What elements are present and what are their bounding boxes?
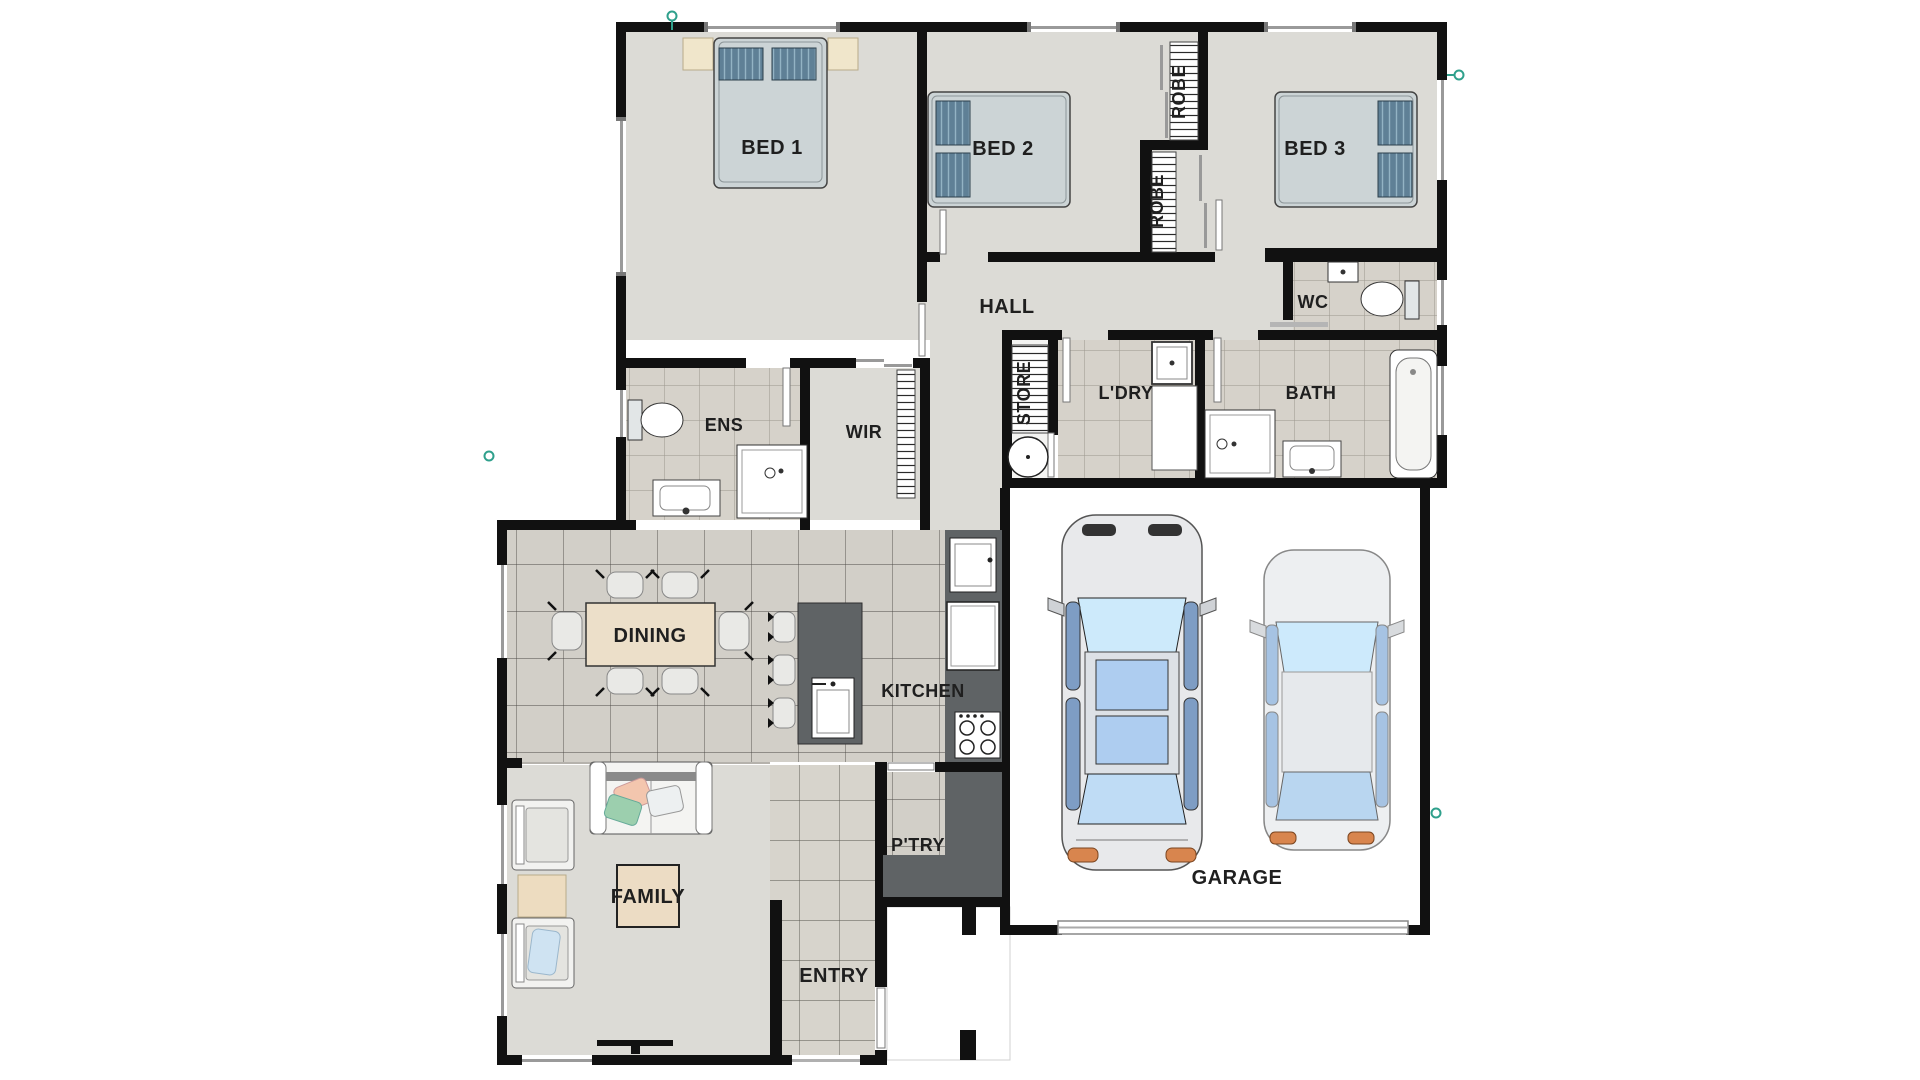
armchair-1 [512,800,574,870]
car1-vent-right [1148,524,1182,536]
car2-taillight-left [1270,832,1296,844]
wall-bed1-bed2 [917,32,927,302]
window-bed1-top [704,22,840,32]
dining-chair [607,572,643,598]
room-label-bed2: BED 2 [972,138,1033,160]
fridge-space [947,602,999,670]
wall-entry-right-lower [875,907,887,987]
floor-plan-page: BED 1 BED 2 BED 3 ROBE ROBE HALL WC ENS … [0,0,1920,1080]
knob [973,714,977,718]
car1-rear-window [1078,774,1186,824]
hot-water-cylinder-center [1026,455,1030,459]
armchair-2 [512,918,574,988]
wall-garage-top [1010,478,1447,488]
car1-windshield [1078,598,1186,652]
armchair-pillow-blue [527,928,561,975]
bed2-pillow-bottom [936,153,970,197]
ens-shower-head [765,468,775,478]
entry-door-bottom [792,1055,860,1065]
entry-floor [770,765,875,1055]
knob [959,714,963,718]
sofa [590,762,712,834]
room-label-garage: GARAGE [1192,867,1283,889]
downpipe-marker [1455,71,1464,80]
dining-chair [662,668,698,694]
bed2-pillow-top [936,101,970,145]
window-ens-left [616,390,626,437]
robe1-slider-a [1160,45,1163,90]
wall-robe2-bottom [1140,252,1215,262]
bar-stool [773,612,795,642]
car1-side-glass [1184,698,1198,810]
room-label-hall: HALL [979,296,1034,318]
car1-side-glass [1066,698,1080,810]
car1-sunroof-rear [1096,716,1168,764]
island-faucet [831,682,836,687]
bath-shower-knob [1232,442,1237,447]
kitchen-dining-floor [507,530,1002,762]
wir-shelving [897,370,915,498]
wc-cavity-slider [1270,322,1328,327]
window-bed3-right [1437,80,1447,180]
bar-stools [773,612,795,728]
store-fixtures [1008,437,1048,477]
armchair-back [516,924,524,982]
wall-family-stub [507,758,522,768]
wc-toilet-bowl [1361,282,1403,316]
family-side-table [518,875,566,917]
wall-robe1-right [1198,32,1208,150]
kitchen-sink [950,538,996,592]
porch-slab [887,907,1010,1060]
sofa-back-cushion [606,772,696,781]
bed3-pillow-bottom [1378,153,1412,197]
wall-hall-bottom-c [1258,330,1447,340]
car-1 [1048,515,1216,870]
wall-dining-top [497,520,636,530]
laundry-faucet [1170,361,1175,366]
car2-rear-window [1276,772,1378,820]
window-wc-right [1437,280,1447,325]
tv-stand [631,1046,640,1054]
car1-sunroof-front [1096,660,1168,710]
bath-door-leaf [1214,338,1221,402]
car2-taillight-right [1348,832,1374,844]
bath-shower [1205,410,1275,478]
car2-windshield [1276,622,1378,672]
window-family-bottom [522,1055,592,1065]
ldry-fixtures [1152,342,1197,470]
room-label-kitchen: KITCHEN [881,681,965,701]
window-bed3-top [1264,22,1356,32]
robe2-slider-a [1199,155,1202,201]
armchair-back [516,806,524,864]
room-label-ptry: P'TRY [891,835,945,855]
car1-side-glass [1066,602,1080,690]
bath-shower-head [1217,439,1227,449]
robe2-slider-b [1204,203,1207,248]
car2-side-glass [1266,712,1278,807]
bed1-side-table-left [683,38,713,70]
wall-garage-right [1420,478,1430,935]
bed1-door-leaf [919,304,925,356]
bathtub-drain [1410,369,1416,375]
dining-chair [552,612,582,650]
window-dining-left [497,565,507,658]
sofa-arm-right [696,762,712,834]
ens-door-leaf [783,368,790,426]
kitchen-faucet [988,558,993,563]
hall-corridor-floor [930,340,1002,530]
knob [980,714,984,718]
room-label-ens: ENS [705,415,744,435]
room-label-ldry: L'DRY [1098,383,1153,403]
window-family-left-1 [497,805,507,884]
ldry-door-leaf [1063,338,1070,402]
wc-toilet-tank [1405,281,1419,319]
wall-garage-bottom-left [1002,925,1062,935]
knob [966,714,970,718]
wall-bed3-bottom [1265,248,1437,262]
wall-bed1-ens-b [790,358,856,368]
pantry-shelf-right [945,772,1002,855]
window-bed2-top [1027,22,1120,32]
garage-door [1058,921,1408,934]
car1-vent-left [1082,524,1116,536]
window-family-left-2 [497,934,507,1016]
downpipe-marker [1432,809,1441,818]
wall-family-entry [770,900,782,1065]
pantry-door-leaf [888,763,934,770]
floor-plan: BED 1 BED 2 BED 3 ROBE ROBE HALL WC ENS … [0,0,1920,1080]
cooktop [955,712,1000,758]
ens-toilet-bowl [641,403,683,437]
dining-chair [719,612,749,650]
dining-chair [607,668,643,694]
wc-basin-faucet [1341,270,1346,275]
sofa-arm-left [590,762,606,834]
downpipe-marker [485,452,494,461]
room-label-robe-b: ROBE [1147,174,1167,228]
bed3-door-leaf [1216,200,1222,250]
wall-garage-bottom-right [1406,925,1430,935]
wall-store-right [1048,340,1058,435]
wall-bed2-bottom-b [988,252,1160,262]
bed1-pillow-right [772,48,816,80]
bath-basin [1290,446,1334,470]
car2-side-glass [1376,712,1388,807]
robe1-slider-b [1165,92,1168,138]
car1-taillight-left [1068,848,1098,862]
car1-taillight-right [1166,848,1196,862]
bed2-door-leaf [940,210,946,254]
room-label-bed1: BED 1 [741,137,802,159]
bed1-side-table-right [828,38,858,70]
wall-bed1-ens-a [616,358,746,368]
car2-side-glass [1266,625,1278,705]
car2-roof [1282,672,1372,772]
ens-faucet [683,508,689,514]
room-label-bed3: BED 3 [1284,138,1345,160]
car-2 [1250,550,1404,850]
wall-wc-left [1283,262,1293,320]
car2-side-glass [1376,625,1388,705]
wall-pantry-bottom [875,897,1010,907]
pantry-shelf-bottom [883,855,1002,897]
room-label-entry: ENTRY [799,965,869,987]
wall-pantry-top [935,762,1005,772]
room-label-wir: WIR [846,422,883,442]
wall-entry-right-corner [875,1050,887,1065]
room-label-wc: WC [1298,292,1329,312]
room-label-store: STORE [1014,361,1034,425]
wir-slider-b [884,364,912,367]
car1-side-glass [1184,602,1198,690]
porch-post-lower [960,1030,976,1060]
front-door-leaf [877,988,885,1048]
wall-robe1-bottom [1140,140,1208,150]
window-bed1-left [616,117,626,276]
ens-toilet-tank [628,400,642,440]
bar-stool [773,655,795,685]
porch-post-upper [962,907,976,935]
store-door-leaf [1048,433,1054,477]
window-bath-right [1437,366,1447,435]
dining-chair [662,572,698,598]
wall-hall-bottom-b [1108,330,1213,340]
island-sink [812,678,854,738]
ens-basin [660,486,710,510]
ens-shower-knob [779,469,784,474]
wall-wir-right [920,358,930,530]
ens-shower [737,445,807,518]
downpipe-marker [668,12,677,21]
bar-stool [773,698,795,728]
room-label-bath: BATH [1286,383,1337,403]
room-label-family: FAMILY [611,886,686,908]
wall-bed2-bottom-a [927,252,940,262]
wir-slider-a [856,359,884,362]
room-label-dining: DINING [614,625,687,647]
bath-faucet [1309,468,1315,474]
laundry-bench [1152,386,1197,470]
bed3-pillow-top [1378,101,1412,145]
bed1-pillow-left [719,48,763,80]
armchair-seat [526,808,568,862]
room-label-robe-a: ROBE [1169,65,1189,119]
tv-screen [597,1040,673,1046]
